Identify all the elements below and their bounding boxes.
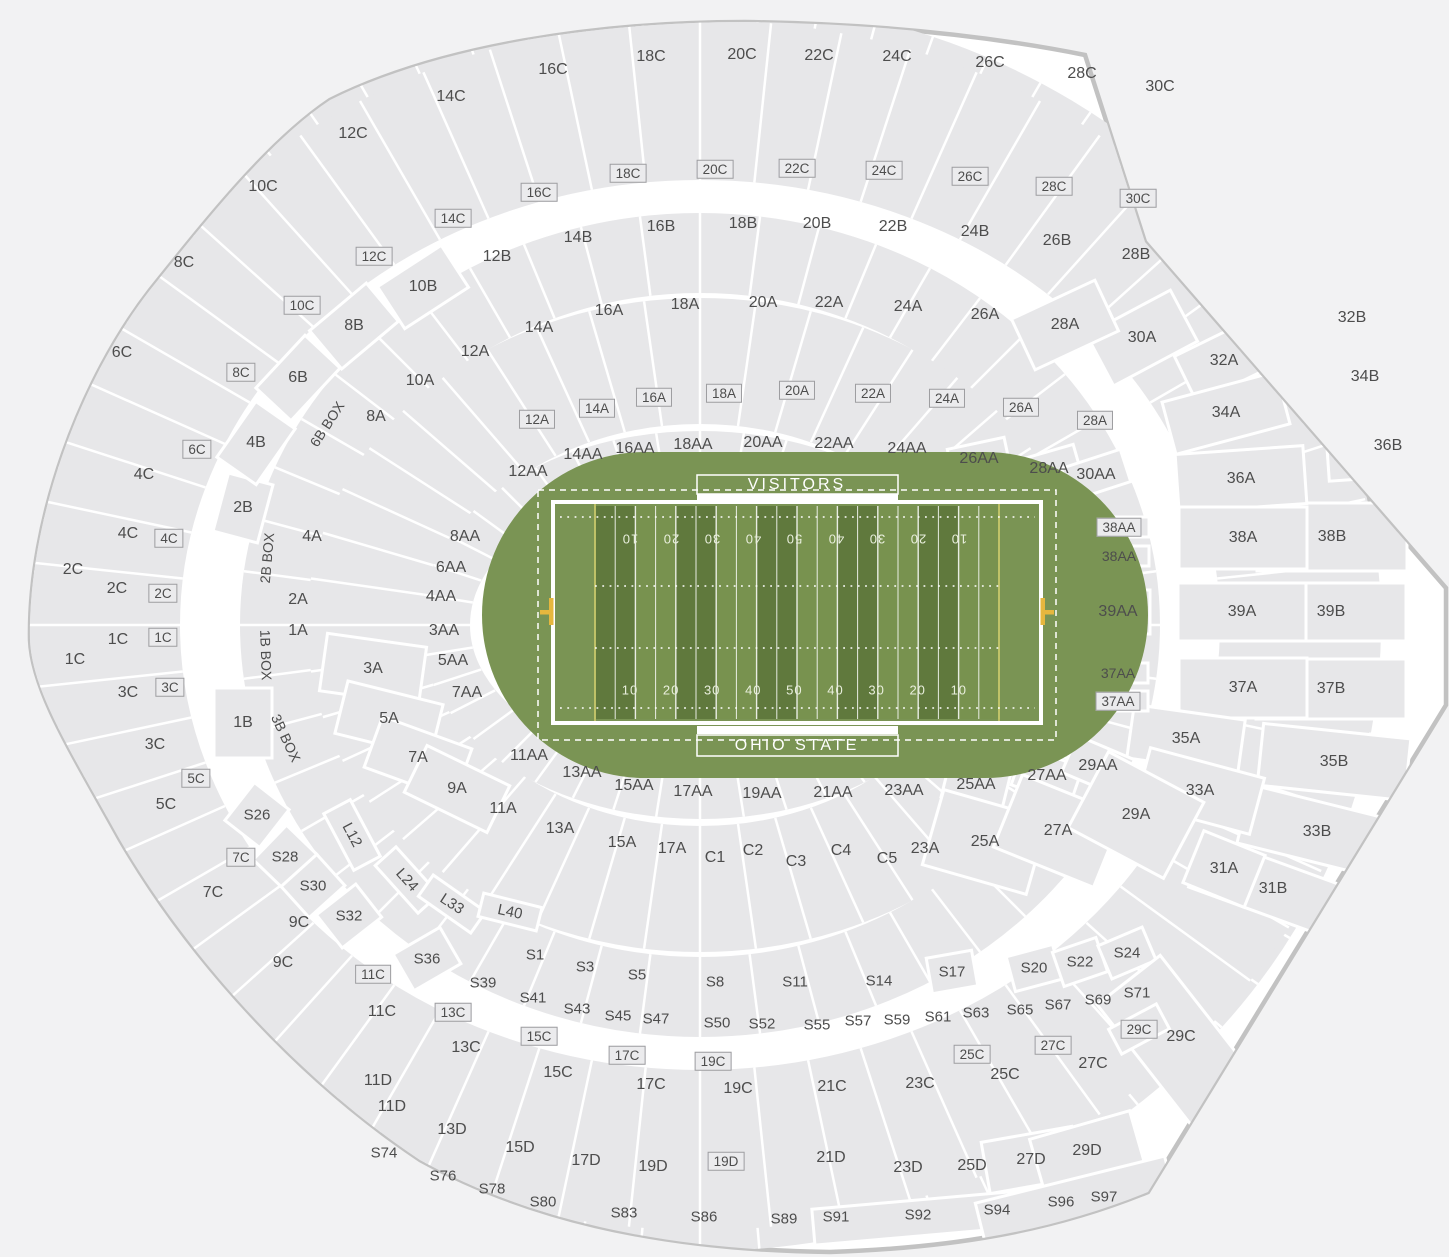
section-label-c5[interactable]: C5 xyxy=(877,851,897,867)
section-label-1c[interactable]: 1C xyxy=(108,632,128,648)
section-label-17aa[interactable]: 17AA xyxy=(673,784,712,800)
section-label-26b[interactable]: 26B xyxy=(1043,233,1071,249)
section-label-s22[interactable]: S22 xyxy=(1067,955,1094,970)
section-label-12aa[interactable]: 12AA xyxy=(508,464,547,480)
section-label-39aa[interactable]: 39AA xyxy=(1098,604,1137,620)
section-label-24c[interactable]: 24C xyxy=(866,161,903,180)
section-label-2c[interactable]: 2C xyxy=(63,562,83,578)
section-label-12c[interactable]: 12C xyxy=(356,247,393,266)
section-label-27c[interactable]: 27C xyxy=(1035,1036,1072,1055)
section-label-15c[interactable]: 15C xyxy=(543,1065,572,1081)
section-label-27aa[interactable]: 27AA xyxy=(1027,768,1066,784)
section-label-s45[interactable]: S45 xyxy=(605,1009,632,1024)
section-label-s96[interactable]: S96 xyxy=(1048,1195,1075,1210)
section-label-s47[interactable]: S47 xyxy=(643,1012,670,1027)
section-label-21c[interactable]: 21C xyxy=(817,1079,846,1095)
yard-number-bottom-1: 20 xyxy=(663,684,679,697)
section-label-27a[interactable]: 27A xyxy=(1044,823,1072,839)
section-label-22a[interactable]: 22A xyxy=(815,295,843,311)
section-label-14c[interactable]: 14C xyxy=(436,89,465,105)
section-label-17c[interactable]: 17C xyxy=(636,1077,665,1093)
section-label-29c[interactable]: 29C xyxy=(1121,1020,1158,1039)
yard-number-bottom-5: 40 xyxy=(827,684,843,697)
section-label-25d[interactable]: 25D xyxy=(957,1158,986,1174)
section-label-30a[interactable]: 30A xyxy=(1128,330,1156,346)
section-label-s52[interactable]: S52 xyxy=(749,1017,776,1032)
section-label-s76[interactable]: S76 xyxy=(430,1169,457,1184)
section-label-c4[interactable]: C4 xyxy=(831,843,851,859)
section-label-4c[interactable]: 4C xyxy=(134,467,154,483)
section-label-21aa[interactable]: 21AA xyxy=(813,785,852,801)
section-label-7a[interactable]: 7A xyxy=(408,750,428,766)
section-label-34b[interactable]: 34B xyxy=(1351,369,1379,385)
section-label-16b[interactable]: 16B xyxy=(647,219,675,235)
section-label-s36[interactable]: S36 xyxy=(414,952,441,967)
section-label-4aa[interactable]: 4AA xyxy=(426,589,456,605)
section-label-6b[interactable]: 6B xyxy=(288,370,308,386)
section-label-8b[interactable]: 8B xyxy=(344,318,364,334)
section-label-24c[interactable]: 24C xyxy=(882,49,911,65)
yard-number-bottom-4: 50 xyxy=(786,684,802,697)
section-label-16aa[interactable]: 16AA xyxy=(615,441,654,457)
section-label-s8[interactable]: S8 xyxy=(706,975,724,990)
section-label-28b[interactable]: 28B xyxy=(1122,247,1150,263)
section-label-22aa[interactable]: 22AA xyxy=(814,436,853,452)
section-label-20a[interactable]: 20A xyxy=(779,381,815,400)
section-label-11d[interactable]: 11D xyxy=(378,1099,406,1115)
yard-number-top-5: 40 xyxy=(827,533,843,546)
section-label-26c[interactable]: 26C xyxy=(975,55,1004,71)
section-label-13d[interactable]: 13D xyxy=(437,1122,466,1138)
section-label-38a[interactable]: 38A xyxy=(1229,530,1257,546)
section-label-1c[interactable]: 1C xyxy=(65,652,85,668)
section-label-18a[interactable]: 18A xyxy=(671,297,699,313)
section-label-8a[interactable]: 8A xyxy=(366,409,386,425)
section-label-15c[interactable]: 15C xyxy=(521,1027,558,1046)
yard-number-bottom-6: 30 xyxy=(868,684,884,697)
section-label-s59[interactable]: S59 xyxy=(884,1013,911,1028)
section-label-4c[interactable]: 4C xyxy=(154,529,183,548)
section-label-6aa[interactable]: 6AA xyxy=(436,560,466,576)
section-label-16a[interactable]: 16A xyxy=(595,303,623,319)
section-label-33a[interactable]: 33A xyxy=(1186,783,1214,799)
section-label-8c[interactable]: 8C xyxy=(226,363,255,382)
section-label-18c[interactable]: 18C xyxy=(610,164,647,183)
section-label-38aa[interactable]: 38AA xyxy=(1102,549,1136,563)
section-label-c2[interactable]: C2 xyxy=(743,843,763,859)
yard-number-bottom-8: 10 xyxy=(951,684,967,697)
section-label-10c[interactable]: 10C xyxy=(248,179,277,195)
section-label-16c[interactable]: 16C xyxy=(521,183,558,202)
section-label-24b[interactable]: 24B xyxy=(961,224,989,240)
section-label-9a[interactable]: 9A xyxy=(447,781,467,797)
section-label-28a[interactable]: 28A xyxy=(1051,317,1079,333)
section-label-31a[interactable]: 31A xyxy=(1210,861,1238,877)
section-label-26aa[interactable]: 26AA xyxy=(959,451,998,467)
section-label-s43[interactable]: S43 xyxy=(564,1002,591,1017)
section-label-11d[interactable]: 11D xyxy=(364,1073,392,1089)
section-label-26a[interactable]: 26A xyxy=(1003,398,1039,417)
section-label-14c[interactable]: 14C xyxy=(435,209,472,228)
section-label-s65[interactable]: S65 xyxy=(1007,1003,1034,1018)
visitors-endzone-label: VISITORS xyxy=(748,477,846,493)
section-label-s17[interactable]: S17 xyxy=(939,965,966,980)
section-label-32b[interactable]: 32B xyxy=(1338,310,1366,326)
section-label-12a[interactable]: 12A xyxy=(519,410,555,429)
section-label-l33[interactable]: L33 xyxy=(437,891,466,917)
section-label-s1[interactable]: S1 xyxy=(526,948,544,963)
section-label-37aa[interactable]: 37AA xyxy=(1101,666,1135,680)
section-label-14b[interactable]: 14B xyxy=(564,230,592,246)
section-label-11c[interactable]: 11C xyxy=(368,1004,396,1020)
section-label-2c[interactable]: 2C xyxy=(107,581,127,597)
section-label-33b[interactable]: 33B xyxy=(1303,824,1331,840)
section-label-23d[interactable]: 23D xyxy=(893,1160,922,1176)
section-label-14aa[interactable]: 14AA xyxy=(563,447,602,463)
section-label-s26[interactable]: S26 xyxy=(244,808,271,823)
section-label-20a[interactable]: 20A xyxy=(749,295,777,311)
section-label-1c[interactable]: 1C xyxy=(148,628,177,647)
section-label-3c[interactable]: 3C xyxy=(155,678,184,697)
section-label-15a[interactable]: 15A xyxy=(608,835,636,851)
section-label-12a[interactable]: 12A xyxy=(461,344,489,360)
section-label-9c[interactable]: 9C xyxy=(273,955,293,971)
section-label-18c[interactable]: 18C xyxy=(636,49,665,65)
section-label-1b[interactable]: 1B xyxy=(233,715,253,731)
section-label-11c[interactable]: 11C xyxy=(355,965,391,984)
section-label-7c[interactable]: 7C xyxy=(203,885,223,901)
section-label-s71[interactable]: S71 xyxy=(1124,986,1151,1001)
section-label-17a[interactable]: 17A xyxy=(658,841,686,857)
yard-number-bottom-2: 30 xyxy=(704,684,720,697)
section-label-s5[interactable]: S5 xyxy=(628,968,646,983)
section-label-18b[interactable]: 18B xyxy=(729,216,757,232)
section-label-35b[interactable]: 35B xyxy=(1320,754,1348,770)
section-label-4c[interactable]: 4C xyxy=(118,526,138,542)
section-label-22c[interactable]: 22C xyxy=(779,159,816,178)
section-label-s74[interactable]: S74 xyxy=(371,1146,398,1161)
section-label-28c[interactable]: 28C xyxy=(1036,177,1073,196)
section-label-s67[interactable]: S67 xyxy=(1045,998,1072,1013)
yard-number-top-8: 10 xyxy=(951,533,967,546)
section-label-38aa[interactable]: 38AA xyxy=(1096,518,1141,537)
section-label-22b[interactable]: 22B xyxy=(879,219,907,235)
section-label-13a[interactable]: 13A xyxy=(546,821,574,837)
section-label-36b[interactable]: 36B xyxy=(1374,438,1402,454)
section-label-30c[interactable]: 30C xyxy=(1145,79,1174,95)
yard-number-bottom-3: 40 xyxy=(745,684,761,697)
section-label-16a[interactable]: 16A xyxy=(636,388,672,407)
section-label-s11[interactable]: S11 xyxy=(782,975,808,990)
section-label-6c[interactable]: 6C xyxy=(182,440,211,459)
section-label-28aa[interactable]: 28AA xyxy=(1029,461,1068,477)
section-label-9c[interactable]: 9C xyxy=(289,915,309,931)
section-label-11aa[interactable]: 11AA xyxy=(510,748,548,764)
section-label-19c[interactable]: 19C xyxy=(723,1081,752,1097)
yard-number-top-4: 50 xyxy=(786,533,802,546)
section-label-27c[interactable]: 27C xyxy=(1078,1056,1107,1072)
section-label-l24[interactable]: L24 xyxy=(393,866,421,895)
section-label-3c[interactable]: 3C xyxy=(118,685,138,701)
section-label-18a[interactable]: 18A xyxy=(706,384,742,403)
section-label-19c[interactable]: 19C xyxy=(695,1052,732,1071)
section-label-32a[interactable]: 32A xyxy=(1210,353,1238,369)
section-label-4a[interactable]: 4A xyxy=(302,529,322,545)
section-label-s3[interactable]: S3 xyxy=(576,960,594,975)
section-label-19d[interactable]: 19D xyxy=(708,1152,745,1171)
section-label-2b-box[interactable]: 2B BOX xyxy=(258,532,276,584)
section-label-s32[interactable]: S32 xyxy=(336,909,363,924)
section-label-20c[interactable]: 20C xyxy=(727,47,756,63)
section-label-21d[interactable]: 21D xyxy=(816,1150,845,1166)
section-label-29aa[interactable]: 29AA xyxy=(1078,758,1117,774)
yard-number-top-0: 10 xyxy=(622,533,638,546)
section-label-29c[interactable]: 29C xyxy=(1166,1029,1195,1045)
section-label-25c[interactable]: 25C xyxy=(990,1067,1019,1083)
section-label-24a[interactable]: 24A xyxy=(929,389,965,408)
section-label-s20[interactable]: S20 xyxy=(1021,961,1048,976)
section-label-37b[interactable]: 37B xyxy=(1317,681,1345,697)
section-label-s55[interactable]: S55 xyxy=(804,1018,831,1033)
section-label-4b[interactable]: 4B xyxy=(246,435,266,451)
section-label-35a[interactable]: 35A xyxy=(1172,731,1200,747)
section-label-2c[interactable]: 2C xyxy=(148,584,177,603)
section-label-8aa[interactable]: 8AA xyxy=(450,529,480,545)
section-label-3b-box[interactable]: 3B BOX xyxy=(269,712,303,764)
section-label-12c[interactable]: 12C xyxy=(338,126,367,142)
section-label-28a[interactable]: 28A xyxy=(1077,411,1113,430)
section-label-s80[interactable]: S80 xyxy=(530,1195,557,1210)
section-label-13aa[interactable]: 13AA xyxy=(562,765,601,781)
section-label-23a[interactable]: 23A xyxy=(911,841,939,857)
section-label-38b[interactable]: 38B xyxy=(1318,529,1346,545)
section-label-5aa[interactable]: 5AA xyxy=(438,653,468,669)
section-label-s69[interactable]: S69 xyxy=(1085,993,1112,1008)
section-labels-layer: VISITORS OHIO STATE 6C8C10C12C14C16C18C2… xyxy=(0,0,1449,1257)
section-label-5c[interactable]: 5C xyxy=(181,769,210,788)
section-label-6c[interactable]: 6C xyxy=(112,345,132,361)
section-label-30c[interactable]: 30C xyxy=(1120,189,1157,208)
section-label-20c[interactable]: 20C xyxy=(697,160,734,179)
section-label-23c[interactable]: 23C xyxy=(905,1076,934,1092)
yard-number-top-1: 20 xyxy=(663,533,679,546)
yard-number-top-6: 30 xyxy=(868,533,884,546)
section-label-29a[interactable]: 29A xyxy=(1122,807,1150,823)
section-label-s86[interactable]: S86 xyxy=(691,1210,718,1225)
section-label-1a[interactable]: 1A xyxy=(288,623,308,639)
section-label-24aa[interactable]: 24AA xyxy=(887,441,926,457)
section-label-17d[interactable]: 17D xyxy=(571,1153,600,1169)
section-label-s94[interactable]: S94 xyxy=(984,1203,1011,1218)
yard-number-bottom-7: 20 xyxy=(909,684,925,697)
section-label-2a[interactable]: 2A xyxy=(288,592,308,608)
section-label-s30[interactable]: S30 xyxy=(300,879,327,894)
section-label-15aa[interactable]: 15AA xyxy=(614,778,653,794)
section-label-s57[interactable]: S57 xyxy=(845,1014,872,1029)
section-label-s50[interactable]: S50 xyxy=(704,1016,731,1031)
section-label-22a[interactable]: 22A xyxy=(855,384,891,403)
section-label-s92[interactable]: S92 xyxy=(905,1208,932,1223)
yard-number-top-2: 30 xyxy=(704,533,720,546)
section-label-12b[interactable]: 12B xyxy=(483,249,511,265)
section-label-10b[interactable]: 10B xyxy=(409,279,437,295)
section-label-s97[interactable]: S97 xyxy=(1091,1190,1118,1205)
section-label-8c[interactable]: 8C xyxy=(174,255,194,271)
yard-number-bottom-0: 10 xyxy=(622,684,638,697)
section-label-13c[interactable]: 13C xyxy=(451,1040,480,1056)
section-label-39a[interactable]: 39A xyxy=(1228,604,1256,620)
section-label-s61[interactable]: S61 xyxy=(925,1010,952,1025)
section-label-25a[interactable]: 25A xyxy=(971,834,999,850)
section-label-s91[interactable]: S91 xyxy=(823,1210,850,1225)
section-label-20b[interactable]: 20B xyxy=(803,216,831,232)
section-label-s83[interactable]: S83 xyxy=(611,1206,638,1221)
section-label-l40[interactable]: L40 xyxy=(496,902,524,922)
section-label-28c[interactable]: 28C xyxy=(1067,66,1096,82)
section-label-s89[interactable]: S89 xyxy=(771,1212,798,1227)
section-label-s39[interactable]: S39 xyxy=(470,976,497,991)
section-label-c1[interactable]: C1 xyxy=(705,850,725,866)
section-label-14a[interactable]: 14A xyxy=(579,399,615,418)
section-label-31b[interactable]: 31B xyxy=(1259,881,1287,897)
section-label-26c[interactable]: 26C xyxy=(952,167,989,186)
section-label-30aa[interactable]: 30AA xyxy=(1076,467,1115,483)
section-label-37aa[interactable]: 37AA xyxy=(1095,692,1140,711)
section-label-c3[interactable]: C3 xyxy=(786,854,806,870)
section-label-27d[interactable]: 27D xyxy=(1016,1152,1045,1168)
section-label-25aa[interactable]: 25AA xyxy=(956,777,995,793)
section-label-6b-box[interactable]: 6B BOX xyxy=(307,399,346,449)
section-label-15d[interactable]: 15D xyxy=(505,1140,534,1156)
section-label-s28[interactable]: S28 xyxy=(272,850,299,865)
section-label-16c[interactable]: 16C xyxy=(538,62,567,78)
section-label-14a[interactable]: 14A xyxy=(525,320,553,336)
yard-number-top-7: 20 xyxy=(909,533,925,546)
section-label-25c[interactable]: 25C xyxy=(954,1045,991,1064)
section-label-23aa[interactable]: 23AA xyxy=(884,783,923,799)
section-label-20aa[interactable]: 20AA xyxy=(743,435,782,451)
section-label-s14[interactable]: S14 xyxy=(866,974,893,989)
section-label-s78[interactable]: S78 xyxy=(479,1182,506,1197)
section-label-s41[interactable]: S41 xyxy=(520,991,547,1006)
section-label-3aa[interactable]: 3AA xyxy=(429,623,459,639)
section-label-5a[interactable]: 5A xyxy=(379,711,399,727)
section-label-5c[interactable]: 5C xyxy=(156,797,176,813)
section-label-7c[interactable]: 7C xyxy=(226,848,255,867)
home-endzone-label: OHIO STATE xyxy=(735,738,860,754)
section-label-22c[interactable]: 22C xyxy=(804,48,833,64)
section-label-36a[interactable]: 36A xyxy=(1227,471,1255,487)
section-label-34a[interactable]: 34A xyxy=(1212,405,1240,421)
section-label-13c[interactable]: 13C xyxy=(435,1003,472,1022)
stadium-seating-map: VISITORS OHIO STATE 6C8C10C12C14C16C18C2… xyxy=(0,0,1449,1257)
section-label-37a[interactable]: 37A xyxy=(1229,680,1257,696)
section-label-39b[interactable]: 39B xyxy=(1317,604,1345,620)
section-label-18aa[interactable]: 18AA xyxy=(673,437,712,453)
section-label-19d[interactable]: 19D xyxy=(638,1159,667,1175)
section-label-2b[interactable]: 2B xyxy=(233,500,253,516)
section-label-10c[interactable]: 10C xyxy=(284,296,321,315)
section-label-s24[interactable]: S24 xyxy=(1114,946,1141,961)
yard-number-top-3: 40 xyxy=(745,533,761,546)
section-label-3a[interactable]: 3A xyxy=(363,661,383,677)
section-label-10a[interactable]: 10A xyxy=(406,373,434,389)
section-label-7aa[interactable]: 7AA xyxy=(452,685,482,701)
section-label-s63[interactable]: S63 xyxy=(963,1006,990,1021)
section-label-26a[interactable]: 26A xyxy=(971,307,999,323)
section-label-17c[interactable]: 17C xyxy=(609,1046,646,1065)
section-label-l12[interactable]: L12 xyxy=(340,820,365,849)
section-label-24a[interactable]: 24A xyxy=(894,299,922,315)
section-label-3c[interactable]: 3C xyxy=(145,737,165,753)
section-label-11a[interactable]: 11A xyxy=(489,801,516,817)
section-label-29d[interactable]: 29D xyxy=(1072,1143,1101,1159)
section-label-19aa[interactable]: 19AA xyxy=(742,786,781,802)
section-label-1b-box[interactable]: 1B BOX xyxy=(258,629,274,680)
